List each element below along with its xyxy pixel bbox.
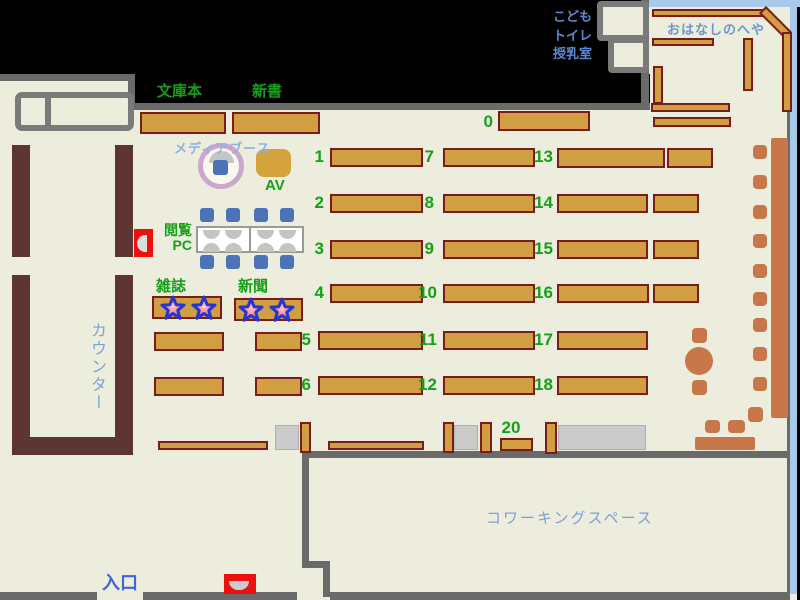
star-icon [269, 297, 295, 323]
star-icon [160, 295, 186, 321]
lounge-seat [692, 380, 707, 395]
wall-coworking-step-v [323, 561, 330, 597]
story-room-label: おはなしのへや [667, 19, 765, 38]
shelf-2 [330, 194, 423, 213]
shelf-14b [653, 194, 699, 213]
shelf-number-14: 14 [527, 193, 553, 213]
shelf-6 [318, 376, 423, 395]
shelf-number-20: 20 [498, 418, 524, 438]
story-room-shelf-b2 [653, 117, 731, 127]
chair [254, 208, 268, 222]
coworking-label: コワーキングスペース [486, 507, 654, 528]
shelf-number-18: 18 [527, 375, 553, 395]
lounge-seat [748, 407, 763, 422]
shelf-4 [330, 284, 423, 303]
vertical-shelf-2 [443, 422, 454, 453]
lounge-seat [753, 292, 767, 306]
shelf-number-13: 13 [527, 147, 553, 167]
counter-label: カウンター [84, 322, 108, 422]
shinsho-label: 新書 [252, 84, 282, 100]
shelf-number-4: 4 [308, 283, 324, 303]
window-band-top [649, 0, 800, 7]
shelf-15 [557, 240, 648, 259]
thin-shelf-left [158, 441, 268, 450]
shinsho-shelf [232, 112, 320, 134]
header-black-area [135, 74, 650, 103]
window-bench [771, 138, 788, 418]
shelf-15b [653, 240, 699, 259]
wall-bottom-right [330, 592, 790, 600]
counter-pillar-right [115, 145, 133, 257]
entrance-label: 入口 [102, 569, 138, 595]
shelf-number-6: 6 [295, 375, 311, 395]
story-room-shelf-v3 [782, 32, 792, 112]
shelf-10 [443, 284, 535, 303]
library-floor-map: 文庫本 新書 AV 閲覧PC 雑誌 新聞 0 1 2 3 4 5 6 7 8 9… [0, 0, 800, 600]
lounge-seat [705, 420, 720, 433]
magazines-label: 雑誌 [156, 279, 186, 295]
staff-room-divider [45, 95, 51, 128]
story-room-shelf-v1 [653, 66, 663, 104]
lounge-seat [753, 264, 767, 278]
toilet-room-lower [608, 37, 649, 73]
round-table [685, 347, 713, 375]
toilet-label: トイレ [520, 25, 592, 44]
story-room-shelf-v2 [743, 38, 753, 91]
av-label: AV [265, 178, 285, 194]
wall-bottom-left [0, 592, 97, 600]
story-room-shelf-top [652, 9, 768, 17]
lounge-seat [753, 234, 767, 248]
shelf-number-8: 8 [418, 193, 434, 213]
shelf-3 [330, 240, 423, 259]
shelf-20 [500, 438, 533, 451]
chair [226, 255, 240, 269]
lounge-seat [753, 377, 767, 391]
kids-label: こども [520, 6, 592, 25]
shelf-number-16: 16 [527, 283, 553, 303]
star-icon [191, 295, 217, 321]
shelf-8 [443, 194, 535, 213]
vertical-shelf-1 [300, 422, 311, 453]
counter-u-bottom [12, 437, 133, 455]
shelf-13 [557, 148, 665, 168]
star-icon [238, 297, 264, 323]
newspapers-label: 新聞 [238, 279, 268, 295]
chair [200, 208, 214, 222]
lounge-seat [753, 205, 767, 219]
wall-coworking-left [302, 451, 309, 567]
vertical-shelf-3 [480, 422, 492, 453]
lounge-seat [728, 420, 745, 433]
lounge-bench-bottom [695, 437, 755, 450]
counter-u-right [115, 275, 133, 455]
shelf-0 [498, 111, 590, 131]
shelf-number-10: 10 [411, 283, 437, 303]
shelf-row5-left-a [154, 332, 224, 351]
vertical-shelf-4 [545, 422, 557, 454]
shelf-number-2: 2 [308, 193, 324, 213]
lounge-seat [753, 175, 767, 189]
shelf-row6-left-a [154, 377, 224, 396]
chair [226, 208, 240, 222]
gray-table-3 [558, 425, 646, 450]
shelf-17 [557, 331, 648, 350]
gray-table-1 [275, 425, 299, 450]
shelf-7 [443, 148, 535, 167]
toilet-room-upper [597, 1, 649, 41]
chair [254, 255, 268, 269]
shelf-number-11: 11 [411, 330, 437, 350]
shelf-5 [318, 331, 423, 350]
shelf-16 [557, 284, 649, 303]
story-room-shelf-b1 [651, 103, 730, 112]
shelf-12 [443, 376, 535, 395]
reading-pc-label: 閲覧PC [158, 223, 192, 253]
media-booth-label: メディアブース [174, 138, 270, 157]
bunkobon-label: 文庫本 [157, 84, 202, 100]
shelf-14 [557, 194, 648, 213]
shelf-11 [443, 331, 535, 350]
lounge-seat [753, 145, 767, 159]
shelf-16b [653, 284, 699, 303]
shelf-1 [330, 148, 423, 167]
chair [280, 208, 294, 222]
shelf-number-15: 15 [527, 239, 553, 259]
shelf-number-1: 1 [308, 147, 324, 167]
media-booth-chair [213, 160, 228, 175]
counter-pillar-left [12, 145, 30, 257]
thin-shelf-right [328, 441, 424, 450]
chair [200, 255, 214, 269]
shelf-number-9: 9 [418, 239, 434, 259]
shelf-13b [667, 148, 713, 168]
story-room-shelf-2 [652, 38, 714, 46]
shelf-number-17: 17 [527, 330, 553, 350]
lounge-seat [753, 318, 767, 332]
lounge-seat [753, 347, 767, 361]
shelf-number-5: 5 [295, 330, 311, 350]
shelf-number-12: 12 [411, 375, 437, 395]
shelf-18 [557, 376, 648, 395]
wall-bottom-center [143, 592, 297, 600]
side-door-arc-icon [137, 235, 147, 252]
gray-table-2 [454, 425, 478, 450]
chair [280, 255, 294, 269]
bunkobon-shelf [140, 112, 226, 134]
staff-room [15, 92, 134, 131]
nursing-room-label: 授乳室 [520, 43, 592, 62]
shelf-number-7: 7 [418, 147, 434, 167]
wall-top-left-horizontal [0, 74, 135, 81]
counter-u-left [12, 275, 30, 455]
shelf-9 [443, 240, 535, 259]
shelf-number-0: 0 [479, 112, 493, 132]
shelf-number-3: 3 [308, 239, 324, 259]
wall-header-bottom [128, 103, 650, 110]
lounge-seat [692, 328, 707, 343]
